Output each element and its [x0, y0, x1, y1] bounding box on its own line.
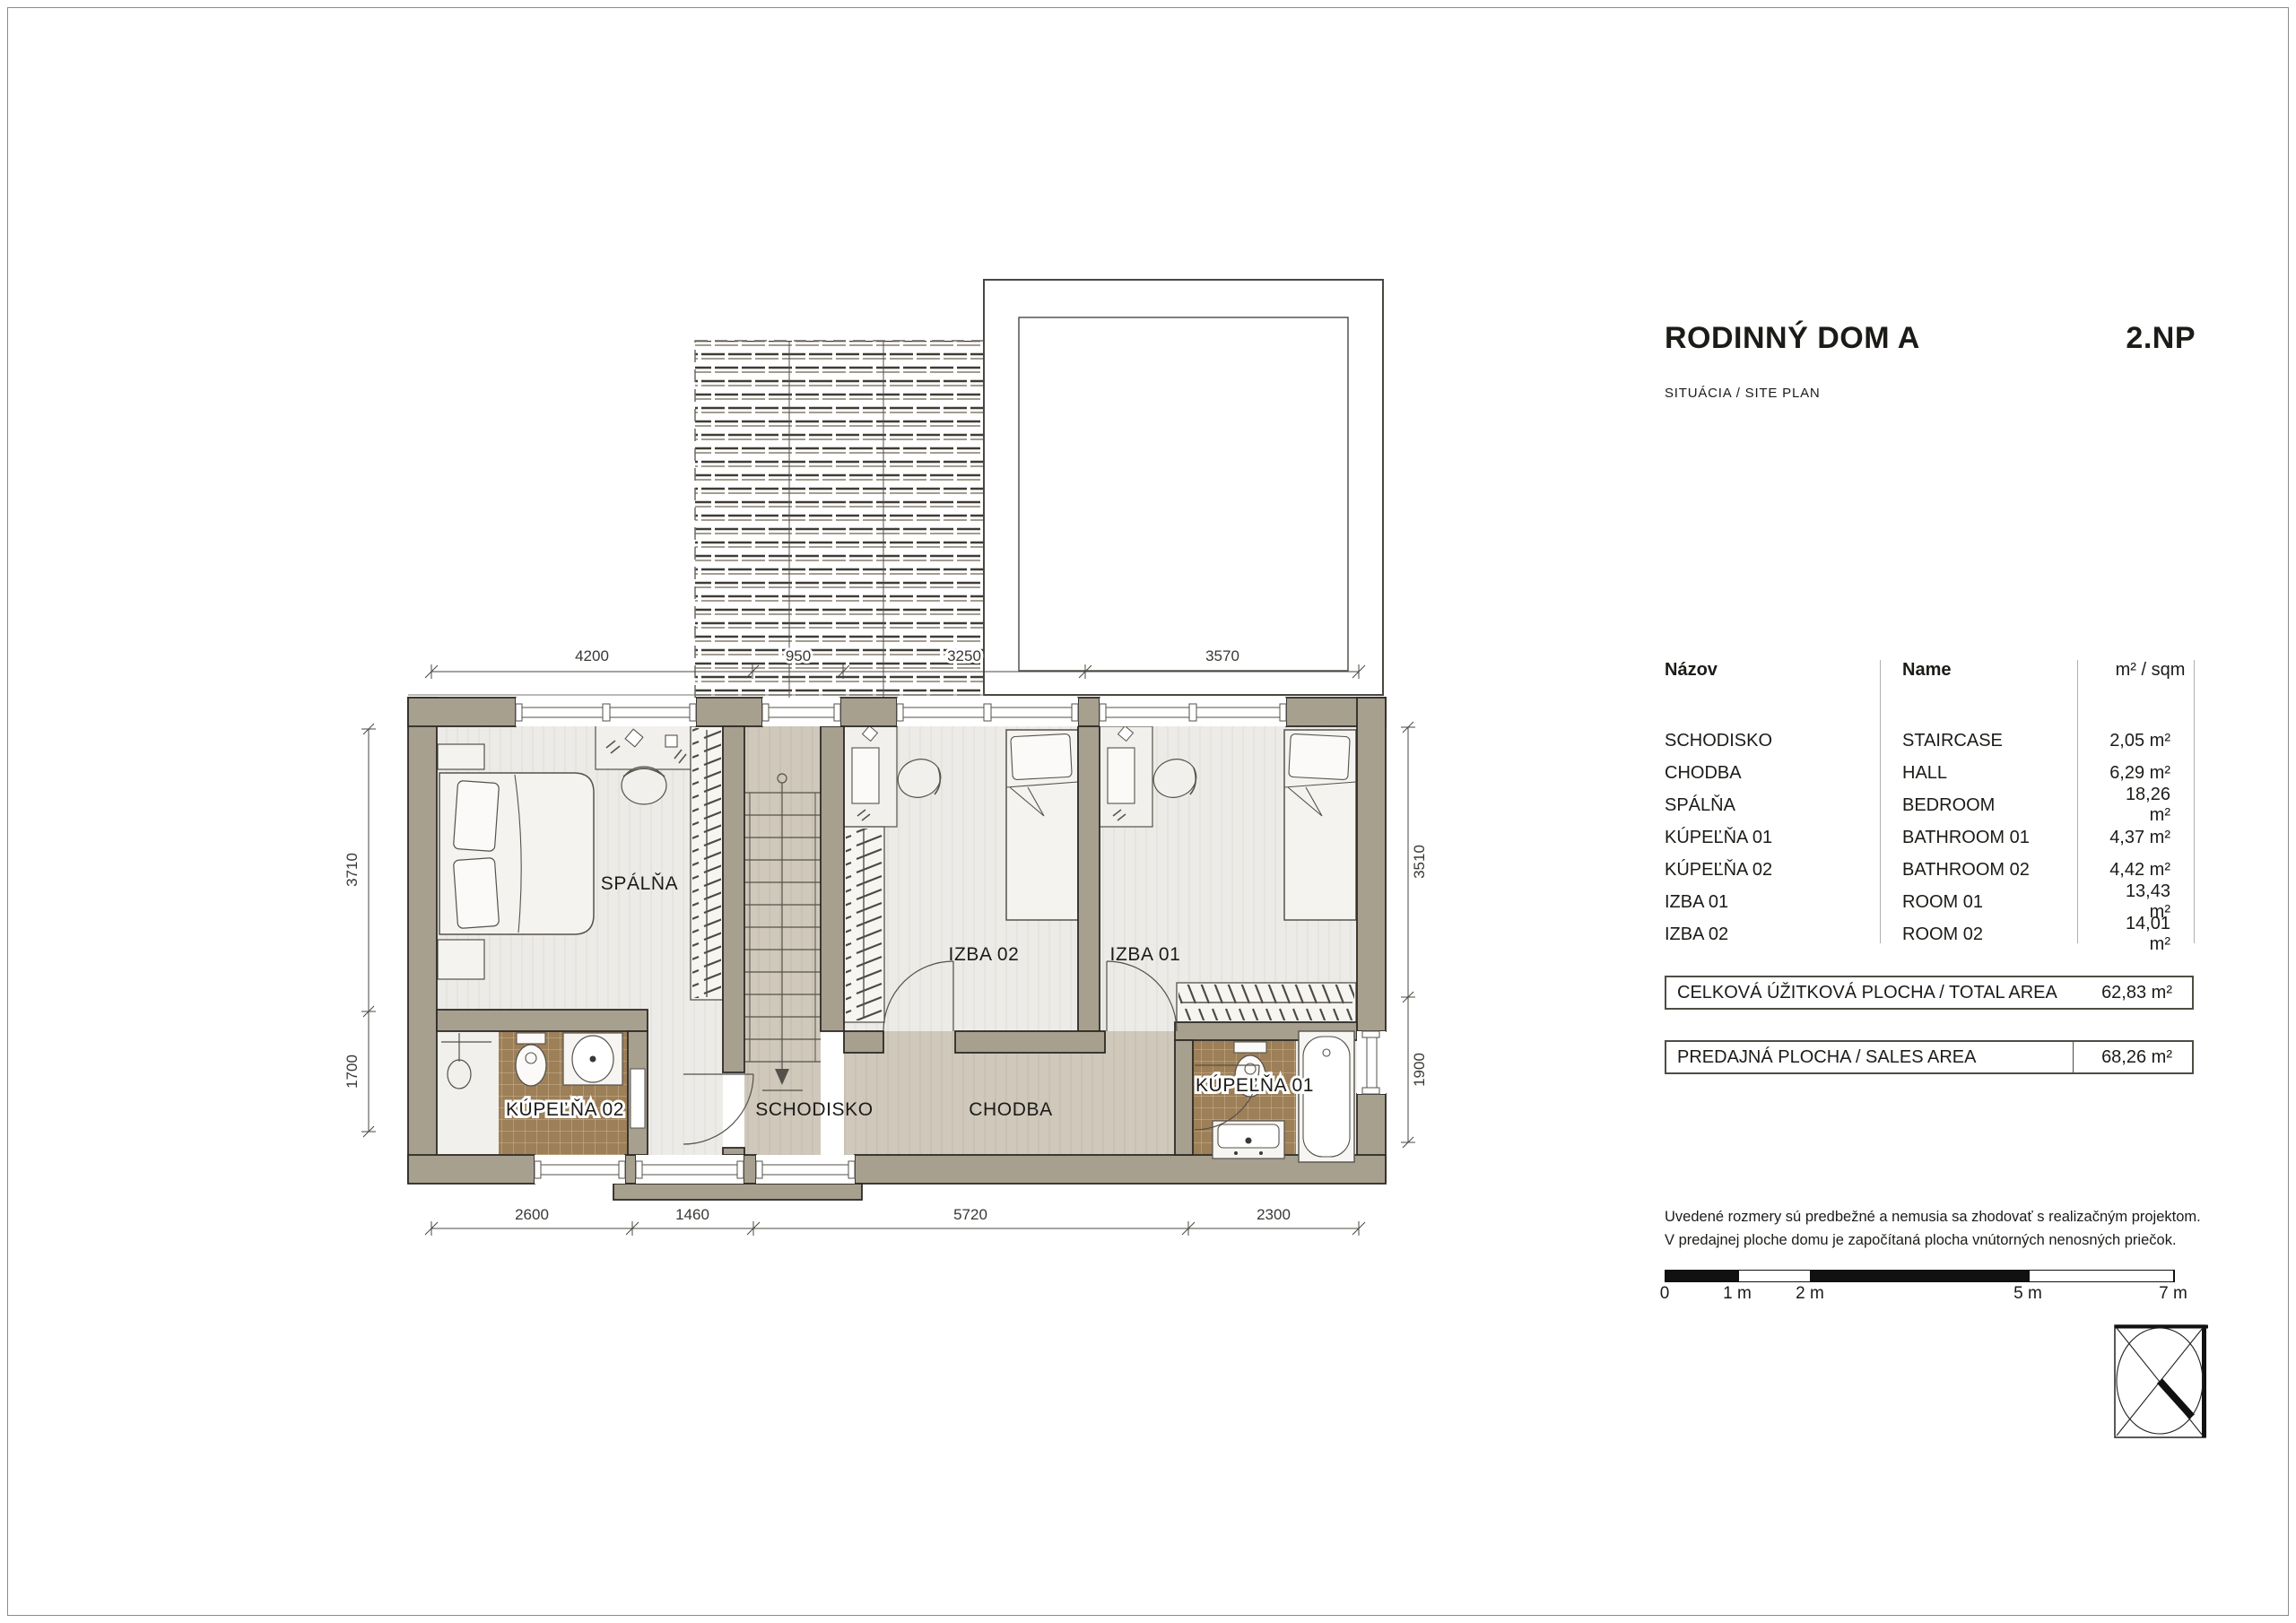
- floor-number: 2.NP: [2126, 321, 2196, 356]
- scale-label-0: 0: [1660, 1284, 1670, 1304]
- cell-nazov: IZBA 02: [1665, 924, 1902, 945]
- cell-name: ROOM 01: [1902, 892, 2107, 913]
- cell-area: 4,37 m²: [2107, 828, 2194, 848]
- total-area-label: CELKOVÁ ÚŽITKOVÁ PLOCHA / TOTAL AREA: [1666, 983, 2073, 1003]
- disclaimer-notes: Uvedené rozmery sú predbežné a nemusia s…: [1665, 1205, 2201, 1252]
- terrace-outline: [984, 280, 1383, 695]
- note-line-2: V predajnej ploche domu je započítaná pl…: [1665, 1228, 2201, 1252]
- dim-top-4: 3570: [1205, 647, 1239, 664]
- cell-name: BATHROOM 02: [1902, 860, 2107, 881]
- dim-bottom-4: 2300: [1257, 1206, 1291, 1223]
- dim-right-1: 3510: [1411, 845, 1428, 879]
- cell-nazov: IZBA 01: [1665, 892, 1902, 913]
- total-area-box: CELKOVÁ ÚŽITKOVÁ PLOCHA / TOTAL AREA 62,…: [1665, 976, 2194, 1010]
- cell-nazov: SPÁLŇA: [1665, 795, 1902, 816]
- cell-area: 18,26 m²: [2107, 785, 2194, 826]
- cell-nazov: KÚPEĽŇA 02: [1665, 860, 1902, 881]
- label-izba02: IZBA 02: [949, 944, 1020, 965]
- dim-left-1: 3710: [344, 853, 361, 887]
- sales-area-box: PREDAJNÁ PLOCHA / SALES AREA 68,26 m²: [1665, 1040, 2194, 1074]
- table-divider: [1880, 660, 1881, 943]
- project-title: RODINNÝ DOM A: [1665, 321, 1920, 356]
- note-line-1: Uvedené rozmery sú predbežné a nemusia s…: [1665, 1205, 2201, 1228]
- column-header-name: Name: [1902, 660, 2107, 681]
- scale-segment-white: [2029, 1271, 2174, 1281]
- table-header-row: Názov Name m² / sqm: [1665, 660, 2194, 696]
- table-row: SCHODISKO STAIRCASE 2,05 m²: [1665, 725, 2194, 757]
- window-bottom-vestibule: [636, 1155, 744, 1184]
- dim-bottom-3: 5720: [953, 1206, 987, 1223]
- north-orientation-icon: [2115, 1325, 2208, 1437]
- table-divider: [2194, 660, 2195, 943]
- dim-bottom: [425, 1221, 1365, 1236]
- label-schodisko: SCHODISKO: [755, 1099, 873, 1120]
- label-chodba: CHODBA: [969, 1099, 1052, 1120]
- table-row: SPÁLŇA BEDROOM 18,26 m²: [1665, 789, 2194, 821]
- scale-bar: [1665, 1270, 2175, 1282]
- scale-segment-black: [1811, 1271, 2029, 1281]
- label-spalna: SPÁLŇA: [601, 873, 678, 894]
- label-kupelna01: KÚPEĽŇA 01: [1196, 1075, 1314, 1096]
- table-row: IZBA 02 ROOM 02 14,01 m²: [1665, 918, 2194, 950]
- scale-segment-black: [1665, 1271, 1738, 1281]
- dim-right-2: 1900: [1411, 1053, 1428, 1087]
- column-header-nazov: Názov: [1665, 660, 1902, 681]
- cell-nazov: KÚPEĽŇA 01: [1665, 828, 1902, 848]
- drawing-subtitle: SITUÁCIA / SITE PLAN: [1665, 386, 1821, 401]
- window-right-bath01: [1357, 1031, 1386, 1094]
- table-divider: [2077, 660, 2078, 943]
- dim-top-1: 4200: [575, 647, 609, 664]
- scale-label-7m: 7 m: [2159, 1284, 2187, 1304]
- dim-top-2: 950: [786, 647, 811, 664]
- dim-left: [361, 724, 376, 1137]
- cell-area: 2,05 m²: [2107, 731, 2194, 751]
- window-top-stair: [762, 698, 840, 726]
- sales-area-label: PREDAJNÁ PLOCHA / SALES AREA: [1666, 1047, 2073, 1068]
- cell-name: HALL: [1902, 763, 2107, 784]
- cell-name: BATHROOM 01: [1902, 828, 2107, 848]
- cell-nazov: CHODBA: [1665, 763, 1902, 784]
- label-kupelna02: KÚPEĽŇA 02: [506, 1099, 624, 1120]
- scale-label-1m: 1 m: [1723, 1284, 1752, 1304]
- drawing-sheet: SPÁLŇA IZBA 02 IZBA 01 KÚPEĽŇA 02 SCHODI…: [0, 0, 2296, 1623]
- scale-label-2m: 2 m: [1796, 1284, 1824, 1304]
- cell-nazov: SCHODISKO: [1665, 731, 1902, 751]
- cell-name: STAIRCASE: [1902, 731, 2107, 751]
- window-top-room01: [1100, 698, 1286, 726]
- window-bottom-stair: [756, 1155, 855, 1184]
- total-area-value: 62,83 m²: [2073, 977, 2192, 1008]
- cell-area: 4,42 m²: [2107, 860, 2194, 881]
- table-row: KÚPEĽŇA 01 BATHROOM 01 4,37 m²: [1665, 821, 2194, 854]
- cell-area: 6,29 m²: [2107, 763, 2194, 784]
- column-header-area: m² / sqm: [2107, 660, 2194, 681]
- cell-name: BEDROOM: [1902, 795, 2107, 816]
- window-top-room02: [897, 698, 1078, 726]
- dim-left-2: 1700: [344, 1055, 361, 1089]
- dim-bottom-2: 1460: [675, 1206, 709, 1223]
- scale-segment-white: [1738, 1271, 1811, 1281]
- room-area-table: Názov Name m² / sqm SCHODISKO STAIRCASE …: [1665, 660, 2194, 950]
- dim-top-3: 3250: [947, 647, 981, 664]
- cell-name: ROOM 02: [1902, 924, 2107, 945]
- dim-bottom-1: 2600: [515, 1206, 549, 1223]
- label-izba01: IZBA 01: [1110, 944, 1181, 965]
- title-block: RODINNÝ DOM A 2.NP: [1665, 321, 2196, 356]
- scale-label-5m: 5 m: [2013, 1284, 2042, 1304]
- window-bottom-bath02: [535, 1155, 625, 1184]
- window-top-bedroom: [516, 698, 696, 726]
- sales-area-value: 68,26 m²: [2073, 1042, 2192, 1072]
- cell-area: 14,01 m²: [2107, 914, 2194, 955]
- roof-hatch-area: [695, 341, 987, 701]
